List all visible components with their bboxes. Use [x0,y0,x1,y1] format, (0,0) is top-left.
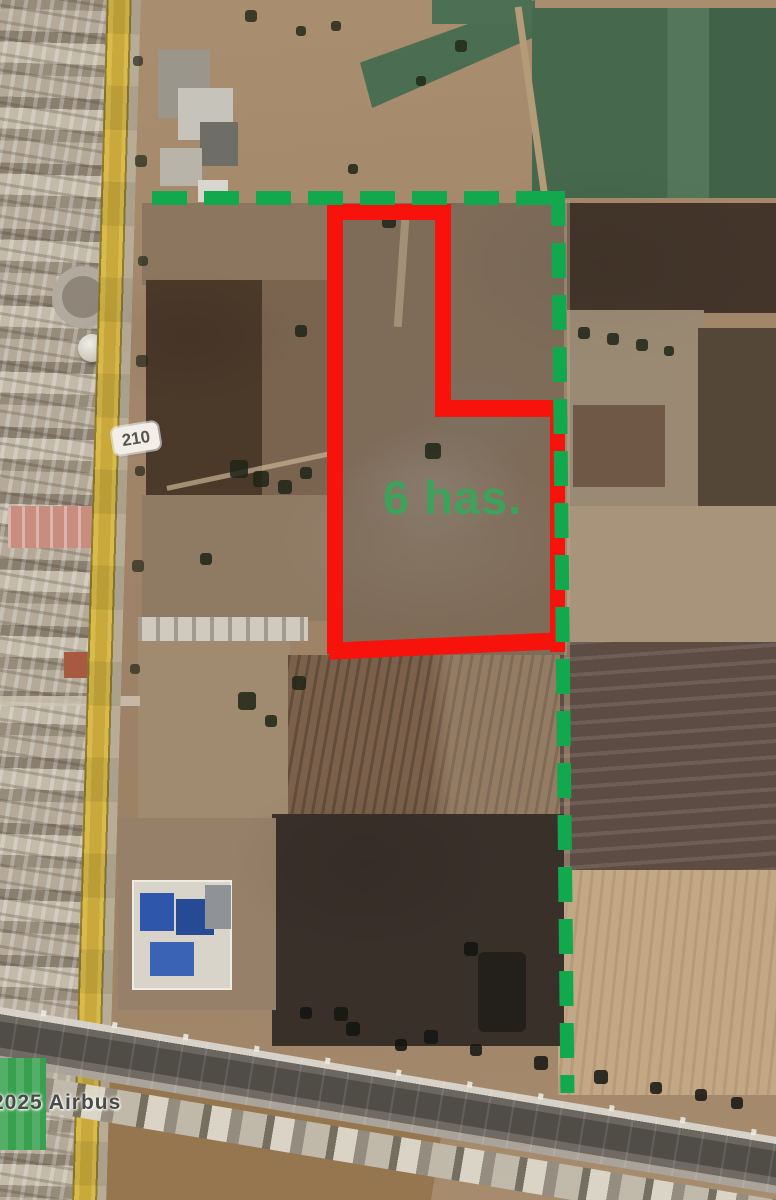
warehouse-strip [138,617,308,641]
tree-clusters [0,0,2,2]
gray-building [205,885,231,929]
parcel-outline-left [327,204,343,654]
field-dark-brown-west [146,280,264,498]
field-tan-west-2 [138,641,290,823]
field-green-large [532,8,776,198]
field-tan-west-lower [142,495,330,621]
field-plowed-center [288,655,560,817]
field-tan-west-upper [142,203,330,285]
parcel-outline-top [327,204,451,220]
blue-roof-building [140,893,174,931]
parcel-outline-right-upper [435,204,451,416]
dark-pond [478,952,526,1032]
field-brown-east-small [573,405,665,487]
industrial-building [200,122,238,166]
blue-roof-building [150,942,194,976]
satellite-map: 6 has. 210 2025 Airbus [0,0,776,1200]
route-210-shield-label: 210 [120,426,151,450]
pink-roof-complex [8,506,98,548]
map-attribution: 2025 Airbus [0,1091,121,1115]
field-dark-brown-east [556,203,776,313]
boundary-line-top [152,191,568,205]
parcel-outline-step [435,400,565,417]
field-darkgray-east [698,328,776,512]
field-ridged-southeast [558,870,776,1095]
field-tan-east-lower [556,506,776,646]
area-label: 6 has. [383,470,522,525]
industrial-building [160,148,202,186]
field-striated-east [558,642,776,874]
